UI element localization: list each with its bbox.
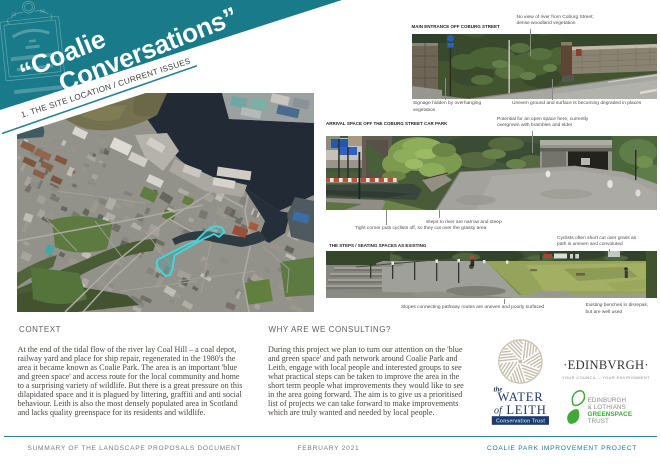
- svg-text:Conservation Trust: Conservation Trust: [496, 419, 545, 425]
- svg-text:02: 02: [40, 8, 46, 14]
- svg-text:of: of: [494, 406, 503, 417]
- svg-text:LEITH: LEITH: [506, 403, 546, 417]
- svg-text:19: 19: [11, 11, 17, 17]
